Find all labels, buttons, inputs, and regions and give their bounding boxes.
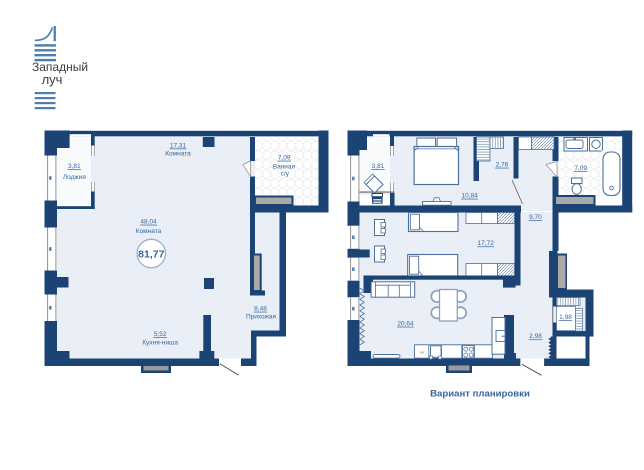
svg-text:10,84: 10,84 <box>461 193 478 200</box>
svg-text:3,81: 3,81 <box>372 163 385 170</box>
svg-text:9,70: 9,70 <box>529 214 542 221</box>
svg-text:20,64: 20,64 <box>397 321 414 328</box>
svg-text:Кухня-ниша: Кухня-ниша <box>142 339 178 346</box>
svg-text:с/у: с/у <box>281 171 290 178</box>
svg-text:7,09: 7,09 <box>278 155 291 162</box>
svg-text:Прихожая: Прихожая <box>246 313 277 320</box>
svg-text:8,48: 8,48 <box>254 306 267 313</box>
svg-text:5,52: 5,52 <box>154 331 167 338</box>
svg-text:17,72: 17,72 <box>478 240 495 247</box>
svg-text:Вариант планировки: Вариант планировки <box>430 389 530 400</box>
svg-text:пм: пм <box>420 351 425 355</box>
svg-text:Лоджия: Лоджия <box>63 174 87 181</box>
svg-text:2,76: 2,76 <box>496 162 509 169</box>
svg-text:3,81: 3,81 <box>68 163 81 170</box>
svg-text:17,31: 17,31 <box>170 142 187 149</box>
svg-text:48,04: 48,04 <box>140 219 157 226</box>
svg-text:1,98: 1,98 <box>559 314 572 321</box>
svg-text:Комната: Комната <box>165 151 191 158</box>
svg-text:2,98: 2,98 <box>529 333 542 340</box>
svg-text:81,77: 81,77 <box>138 248 164 260</box>
svg-text:7,09: 7,09 <box>574 165 587 172</box>
svg-text:Ванная: Ванная <box>273 163 296 170</box>
svg-text:луч: луч <box>42 72 63 87</box>
svg-text:Комната: Комната <box>136 228 162 235</box>
